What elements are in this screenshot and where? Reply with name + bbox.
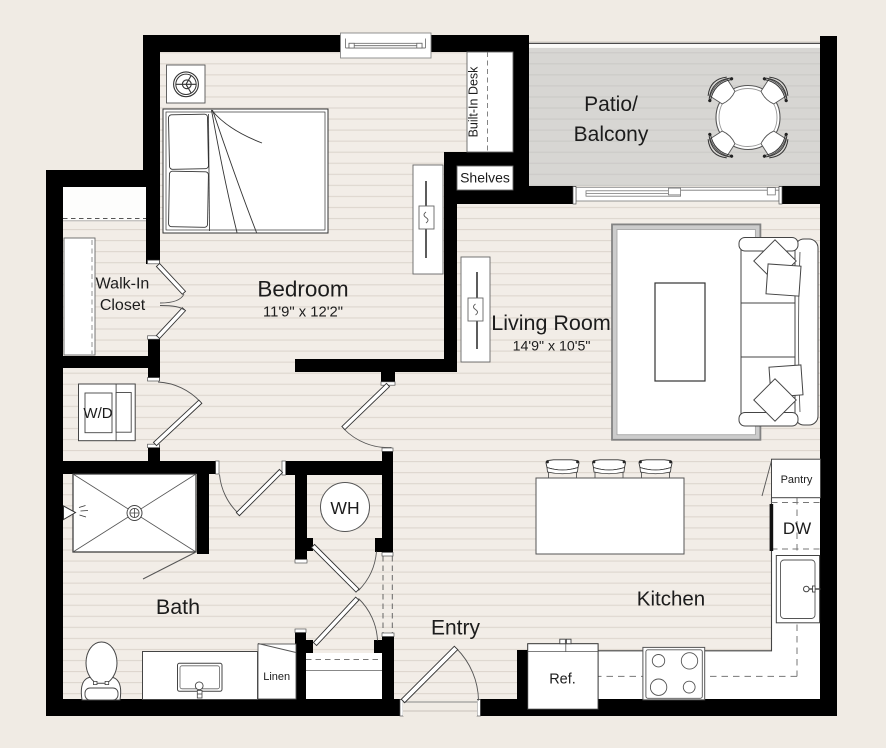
svg-text:Closet: Closet (100, 297, 146, 314)
svg-text:Linen: Linen (263, 671, 290, 683)
svg-text:W/D: W/D (83, 405, 112, 422)
svg-text:Patio/: Patio/ (584, 93, 638, 116)
svg-text:Bath: Bath (156, 595, 200, 619)
svg-text:Entry: Entry (431, 617, 481, 640)
svg-text:Living Room: Living Room (491, 311, 611, 335)
svg-text:Pantry: Pantry (781, 474, 813, 486)
svg-text:WH: WH (330, 498, 359, 518)
svg-text:Balcony: Balcony (574, 123, 649, 146)
svg-text:11'9" x 12'2": 11'9" x 12'2" (263, 305, 343, 321)
svg-text:DW: DW (783, 519, 811, 538)
svg-text:Bedroom: Bedroom (257, 277, 348, 302)
svg-text:Kitchen: Kitchen (637, 588, 705, 611)
svg-text:Walk-In: Walk-In (96, 276, 150, 293)
svg-text:Shelves: Shelves (460, 170, 510, 186)
svg-text:14'9" x 10'5": 14'9" x 10'5" (513, 339, 591, 355)
svg-text:Built-In Desk: Built-In Desk (467, 66, 481, 138)
svg-text:Ref.: Ref. (549, 672, 576, 688)
